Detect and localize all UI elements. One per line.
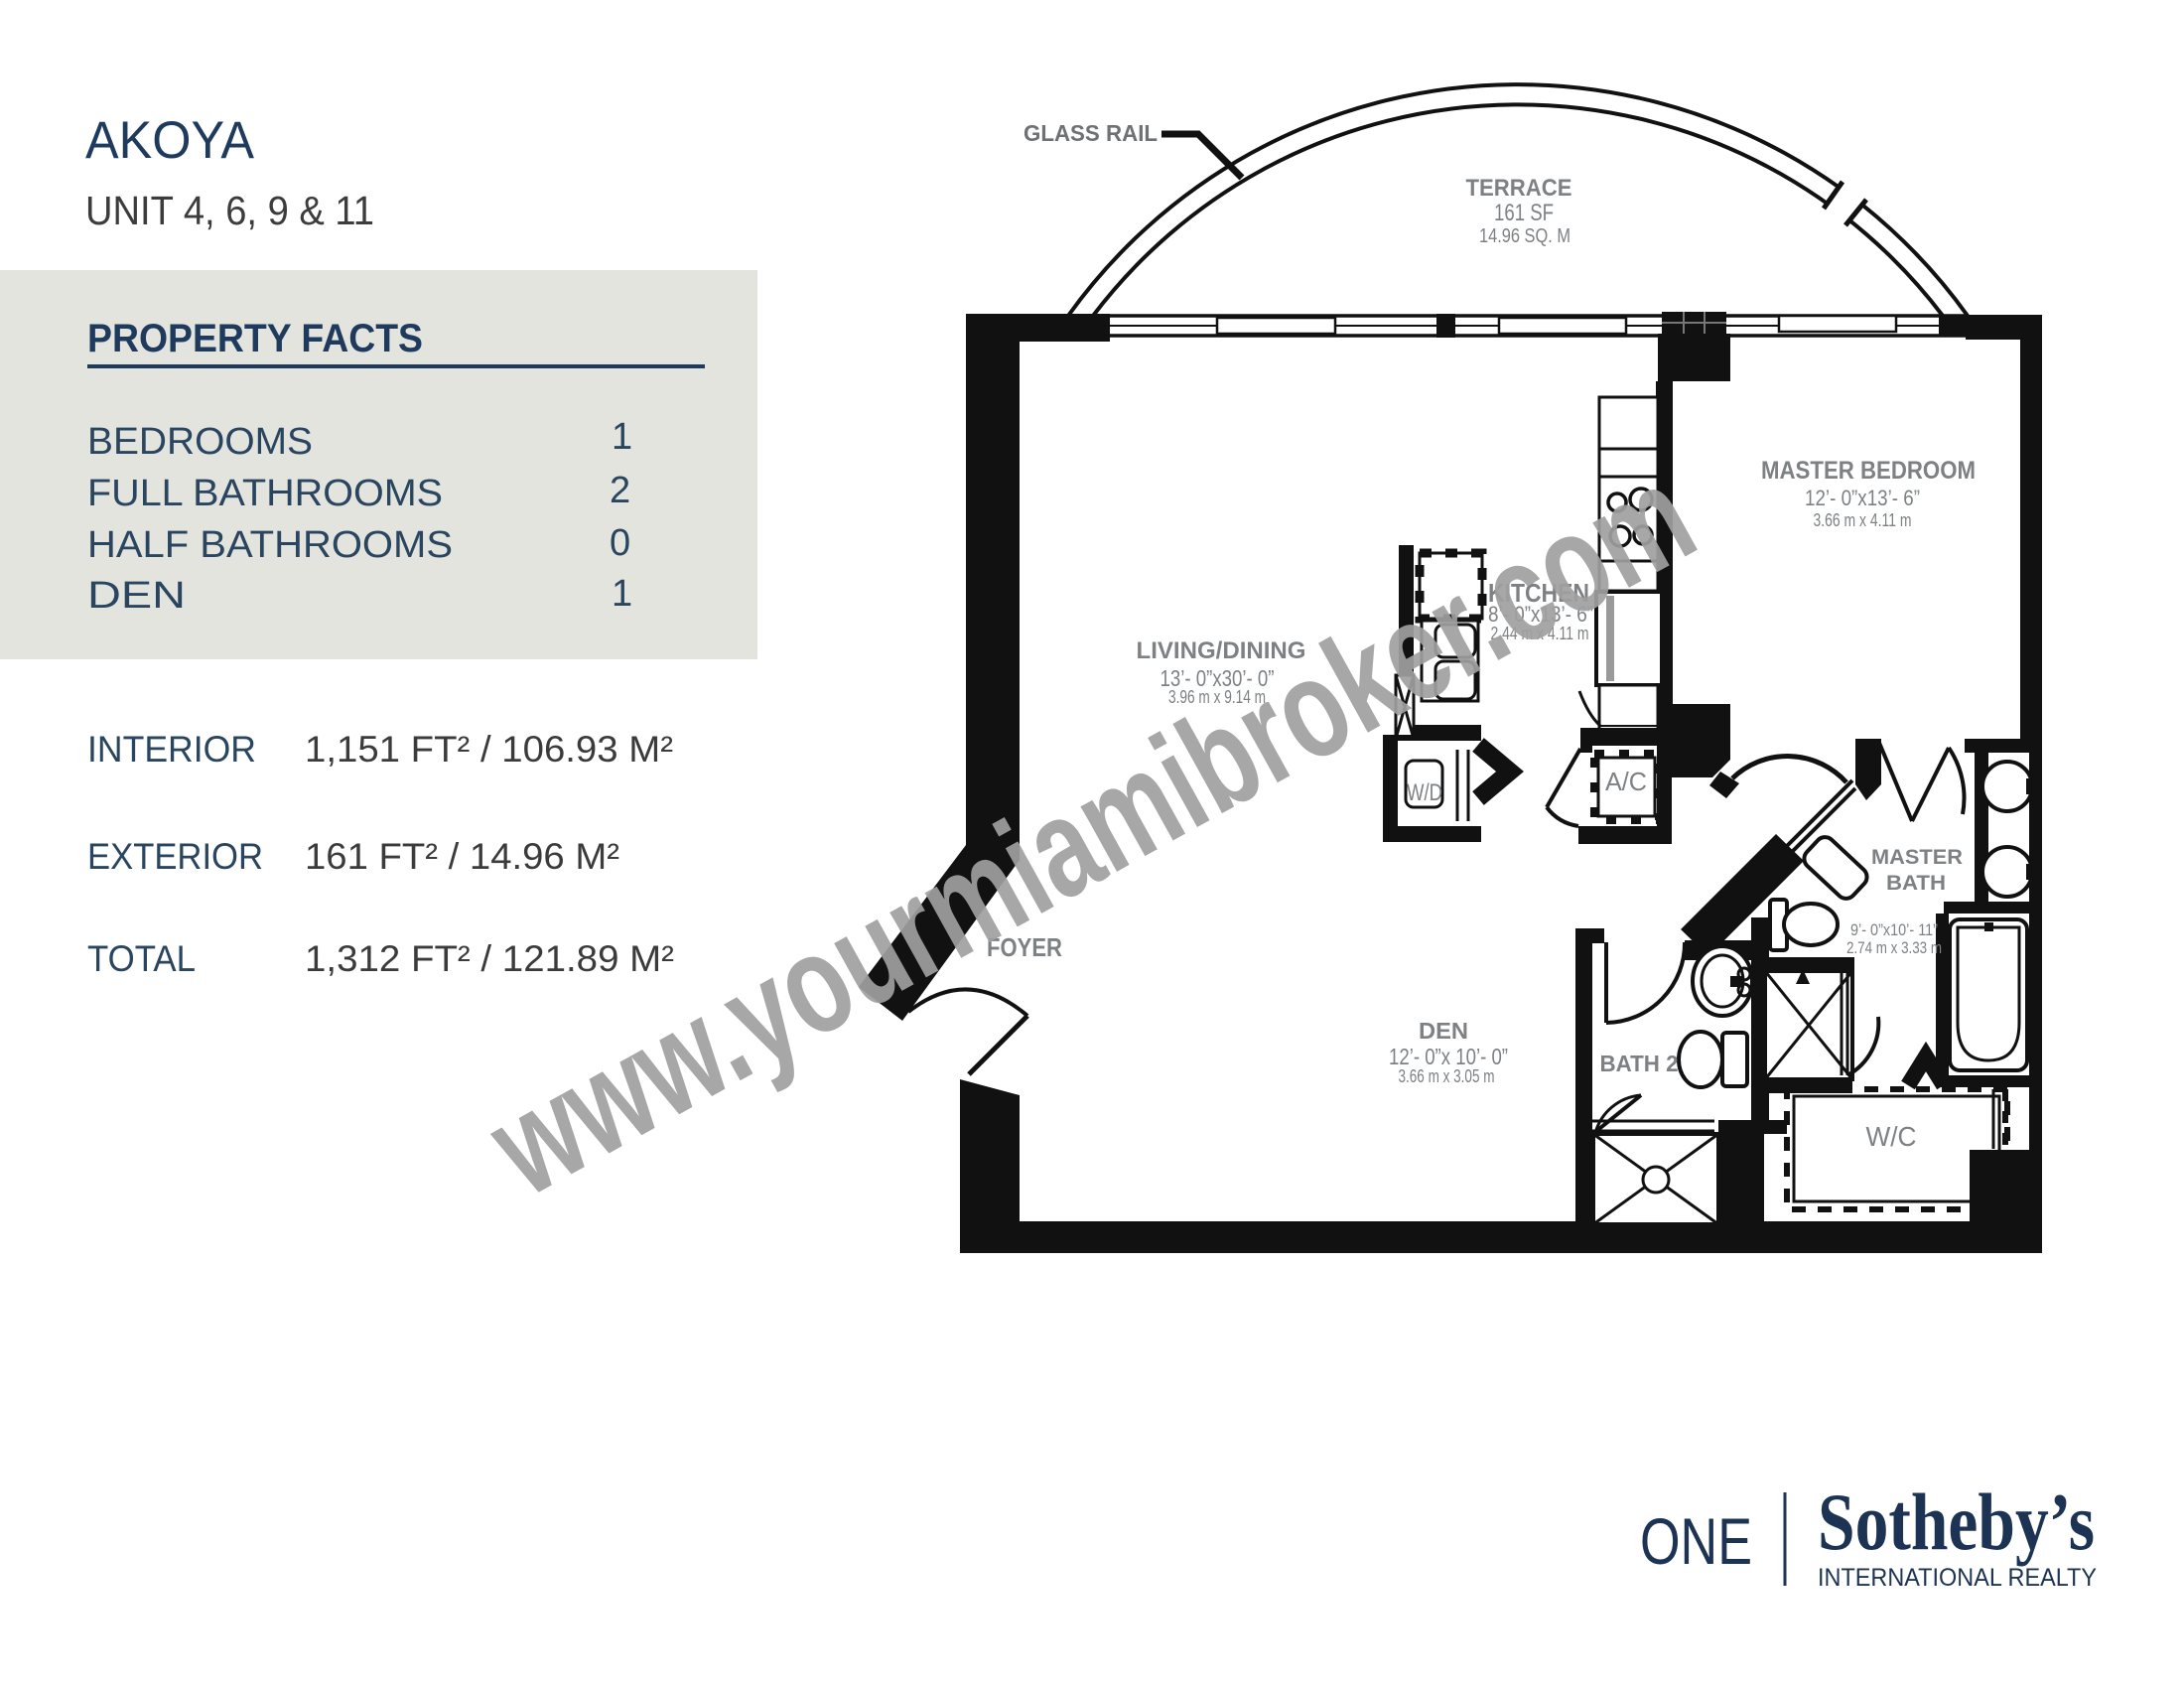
svg-text:TERRACE: TERRACE: [1466, 175, 1572, 202]
svg-text:PROPERTY FACTS: PROPERTY FACTS: [87, 317, 423, 360]
svg-text:MASTER: MASTER: [1871, 846, 1963, 869]
svg-text:HALF BATHROOMS: HALF BATHROOMS: [87, 524, 453, 566]
svg-text:FULL BATHROOMS: FULL BATHROOMS: [87, 473, 443, 514]
svg-text:W/C: W/C: [1866, 1121, 1917, 1152]
svg-text:2.74 m x 3.33 m: 2.74 m x 3.33 m: [1846, 938, 1942, 957]
svg-text:W/D: W/D: [1407, 779, 1442, 806]
svg-text:1,312 FT² / 121.89 M²: 1,312 FT² / 121.89 M²: [305, 938, 674, 979]
svg-text:161 SF: 161 SF: [1494, 200, 1554, 226]
svg-text:DEN: DEN: [87, 575, 186, 617]
svg-text:GLASS RAIL: GLASS RAIL: [1024, 120, 1158, 146]
svg-text:14.96 SQ. M: 14.96 SQ. M: [1479, 225, 1570, 247]
svg-text:12’- 0”x13’- 6”: 12’- 0”x13’- 6”: [1805, 486, 1920, 510]
svg-text:TOTAL: TOTAL: [87, 938, 196, 979]
svg-text:EXTERIOR: EXTERIOR: [87, 836, 263, 877]
svg-text:2: 2: [610, 470, 630, 511]
svg-text:1: 1: [612, 416, 632, 458]
svg-text:3.66 m x 3.05 m: 3.66 m x 3.05 m: [1399, 1066, 1495, 1086]
svg-text:1,151 FT² / 106.93 M²: 1,151 FT² / 106.93 M²: [305, 729, 673, 770]
svg-text:161 FT² / 14.96 M²: 161 FT² / 14.96 M²: [305, 836, 619, 877]
svg-text:A/C: A/C: [1605, 767, 1647, 796]
svg-text:BEDROOMS: BEDROOMS: [87, 421, 313, 463]
svg-text:BATH: BATH: [1886, 872, 1946, 895]
svg-text:1: 1: [612, 573, 632, 615]
svg-text:INTERNATIONAL REALTY: INTERNATIONAL REALTY: [1818, 1564, 2097, 1592]
svg-text:9’- 0”x10’- 11”: 9’- 0”x10’- 11”: [1850, 920, 1938, 939]
svg-text:3.66 m x 4.11 m: 3.66 m x 4.11 m: [1814, 510, 1912, 530]
svg-text:0: 0: [610, 522, 630, 564]
svg-text:UNIT 4, 6, 9 & 11: UNIT 4, 6, 9 & 11: [85, 188, 374, 233]
svg-text:AKOYA: AKOYA: [85, 111, 255, 170]
svg-text:DEN: DEN: [1419, 1018, 1468, 1044]
svg-text:MASTER BEDROOM: MASTER BEDROOM: [1761, 457, 1976, 485]
svg-text:Sotheby’s: Sotheby’s: [1818, 1477, 2095, 1567]
svg-text:INTERIOR: INTERIOR: [87, 729, 256, 770]
svg-text:ONE: ONE: [1640, 1504, 1752, 1578]
svg-text:BATH 2: BATH 2: [1600, 1051, 1679, 1076]
